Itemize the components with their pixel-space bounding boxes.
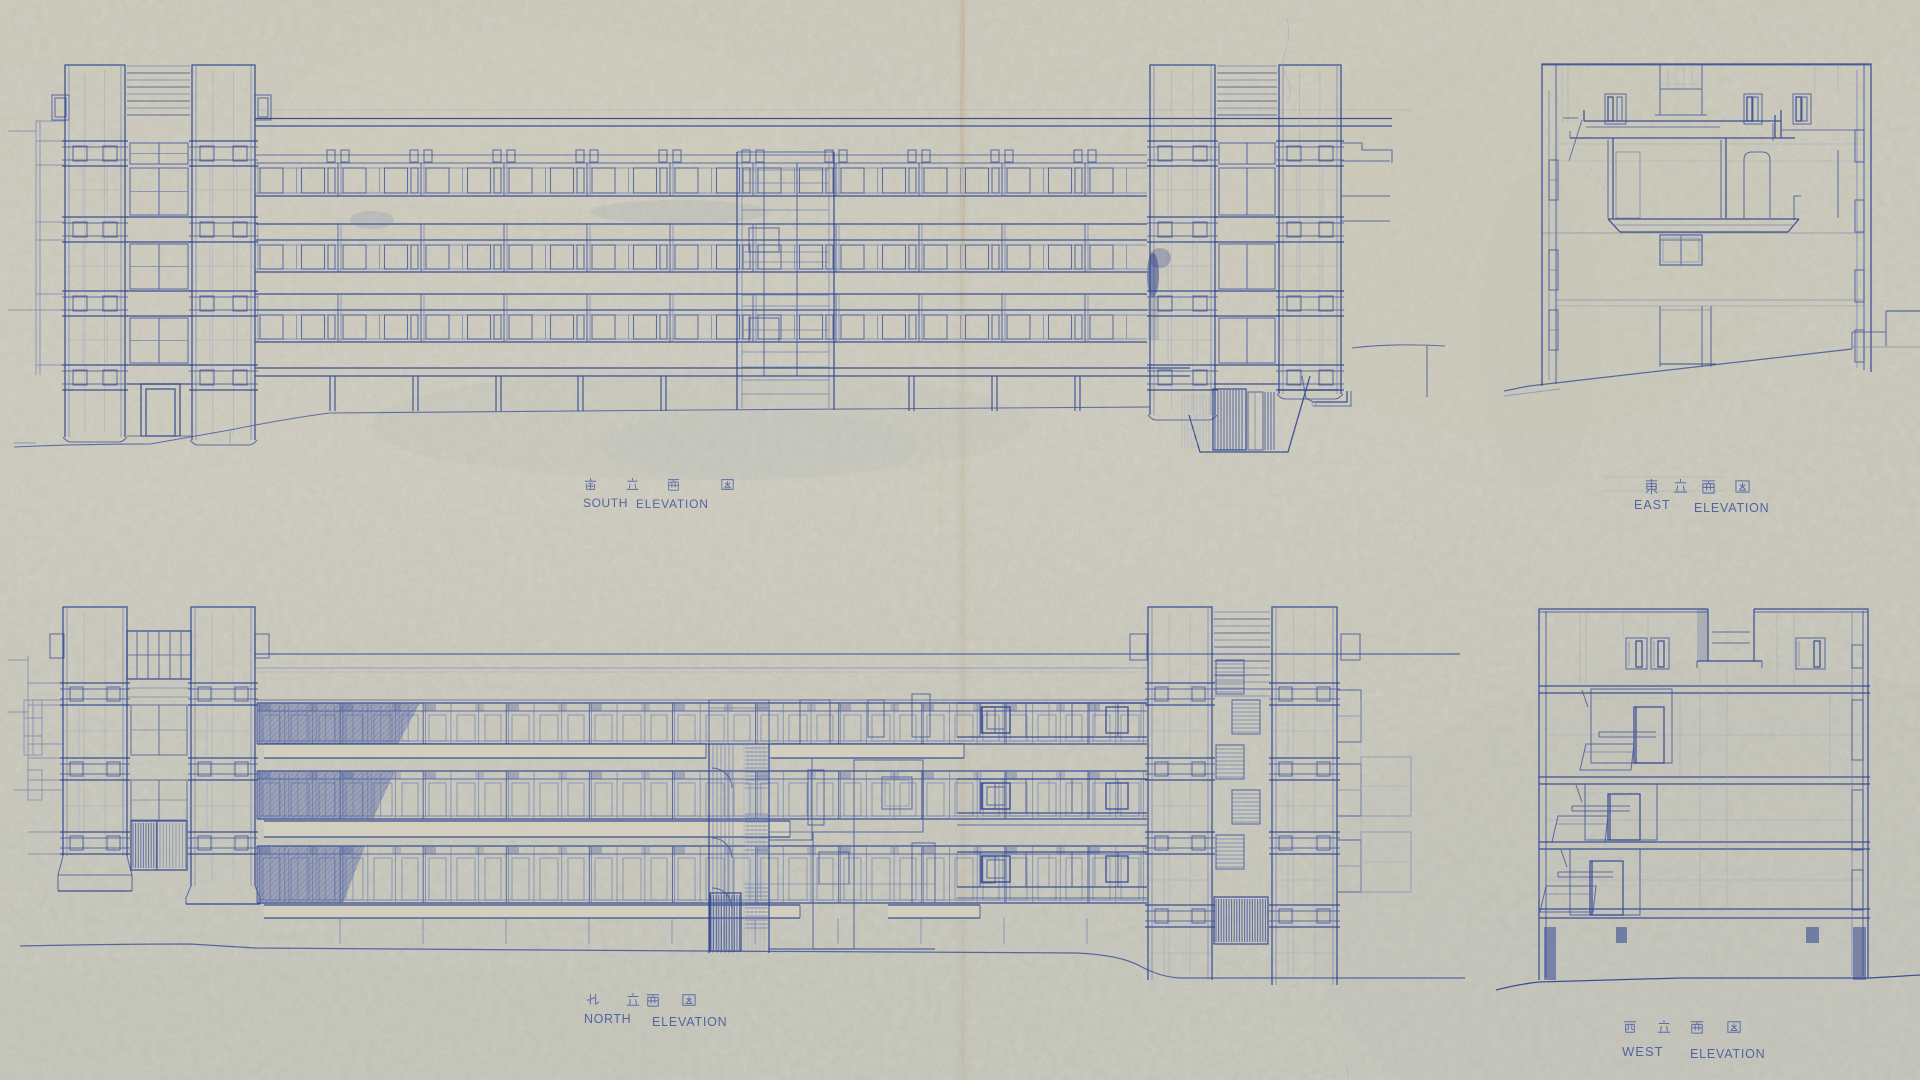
svg-text:EAST: EAST: [1634, 498, 1671, 512]
svg-text:ELEVATION: ELEVATION: [636, 497, 709, 511]
svg-text:ELEVATION: ELEVATION: [1694, 501, 1770, 515]
svg-text:ELEVATION: ELEVATION: [652, 1015, 728, 1029]
svg-text:SOUTH: SOUTH: [583, 496, 628, 510]
svg-text:NORTH: NORTH: [584, 1012, 631, 1026]
svg-text:WEST: WEST: [1622, 1044, 1664, 1059]
svg-text:ELEVATION: ELEVATION: [1690, 1047, 1766, 1061]
